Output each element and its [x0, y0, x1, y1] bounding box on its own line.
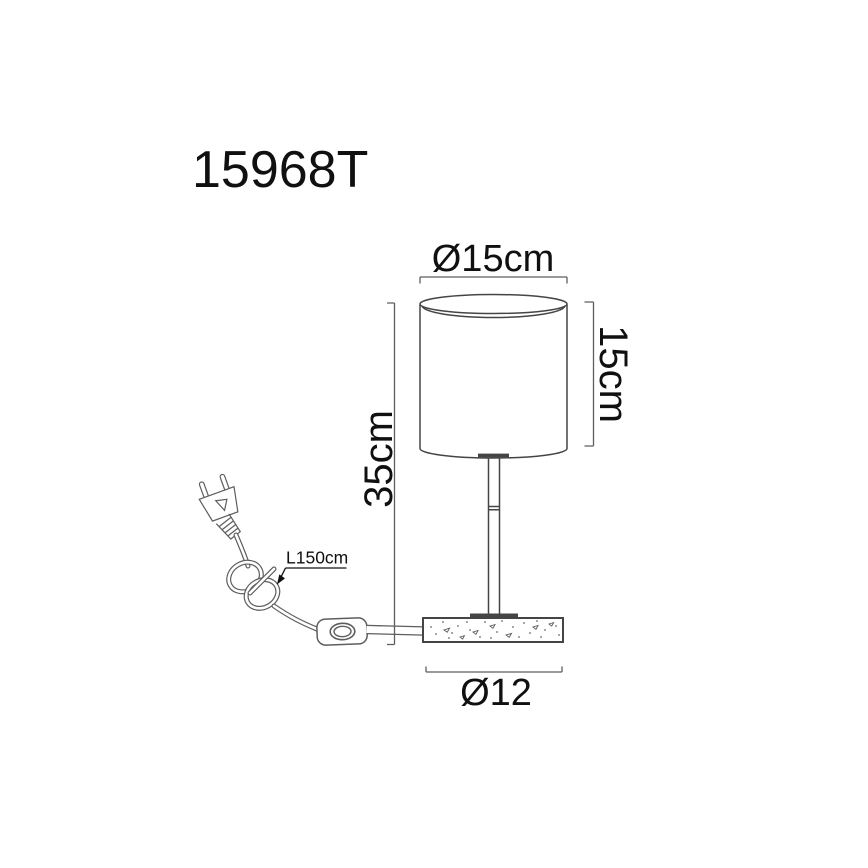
dimension-base-diameter: Ø12: [426, 667, 562, 715]
switch-housing: [317, 618, 368, 646]
lamp-technical-drawing: 15968T: [0, 0, 868, 868]
eu-plug: [194, 472, 243, 523]
shade-fitting: [478, 454, 509, 458]
dim-shade-diameter-label: Ø15cm: [432, 238, 554, 280]
dim-base-diameter-label: Ø12: [460, 672, 532, 714]
leader-arrowhead-icon: [277, 574, 285, 584]
dimension-total-height: 35cm: [357, 303, 401, 645]
technical-drawing-page: 15968T: [0, 0, 868, 868]
lamp-stem: [470, 454, 518, 618]
cable-length-label: L150cm: [286, 548, 348, 568]
dim-total-height-label: 35cm: [357, 410, 401, 508]
dim-shade-height-label: 15cm: [591, 325, 635, 423]
lamp-base: [423, 618, 563, 642]
inline-switch: [317, 618, 368, 646]
shade-top-rim: [420, 295, 567, 314]
product-code: 15968T: [192, 141, 368, 199]
stem-joint: [489, 507, 500, 510]
lamp-shade: [420, 295, 567, 459]
cable-length-annotation: L150cm: [277, 548, 348, 585]
dimension-shade-diameter: Ø15cm: [420, 238, 567, 284]
dimension-shade-height: 15cm: [585, 302, 636, 446]
